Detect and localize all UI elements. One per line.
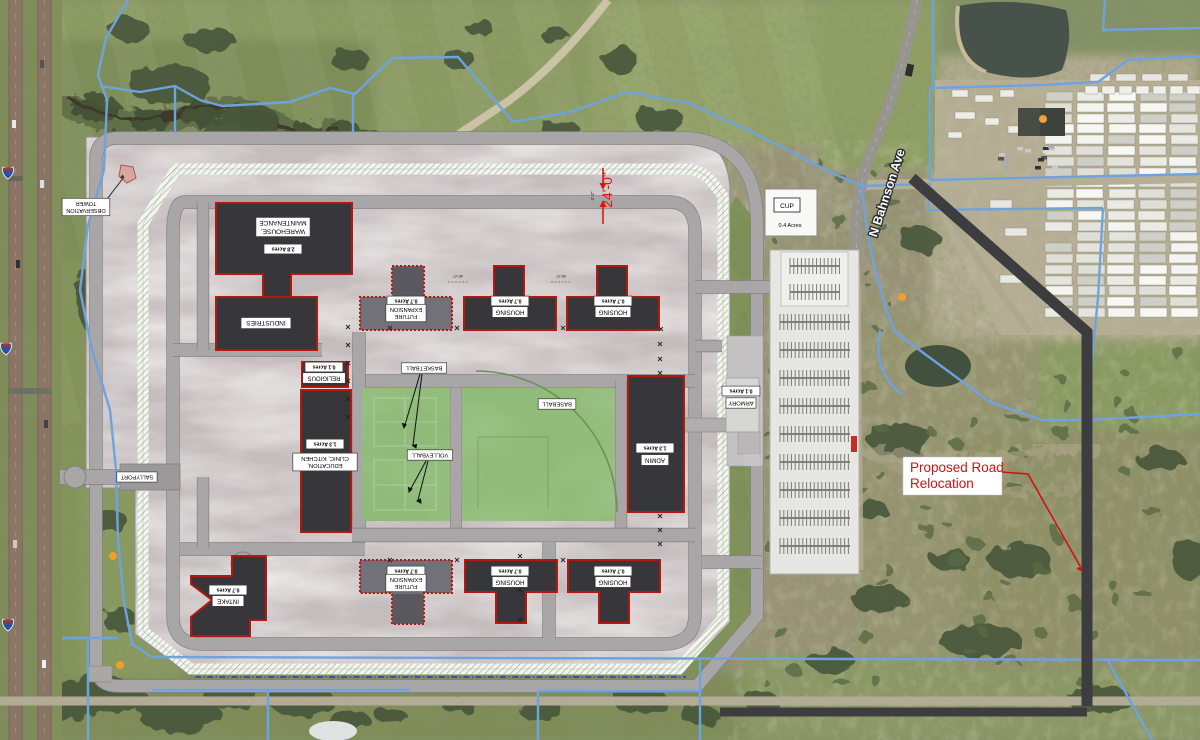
svg-text:RELIGIOUS: RELIGIOUS bbox=[308, 374, 341, 380]
svg-text:0.7 Acres: 0.7 Acres bbox=[394, 568, 417, 574]
svg-text:MAINTENANCE: MAINTENANCE bbox=[259, 219, 307, 226]
svg-text:40'-0": 40'-0" bbox=[452, 274, 463, 279]
svg-text:2.8 Acres: 2.8 Acres bbox=[271, 246, 294, 252]
svg-text:1.3 Acres: 1.3 Acres bbox=[643, 445, 666, 451]
svg-text:HOUSING: HOUSING bbox=[598, 578, 627, 585]
svg-text:OBSERVATION: OBSERVATION bbox=[66, 207, 105, 213]
svg-text:0.7 Acres: 0.7 Acres bbox=[394, 298, 417, 304]
svg-text:40'-0": 40'-0" bbox=[555, 274, 566, 279]
svg-text:3'-2": 3'-2" bbox=[590, 191, 595, 200]
svg-text:CLINIC, KITCHEN: CLINIC, KITCHEN bbox=[301, 455, 349, 461]
svg-text:ARMORY: ARMORY bbox=[728, 400, 753, 406]
svg-text:INDUSTRIES: INDUSTRIES bbox=[246, 319, 286, 326]
svg-text:EXPANSION: EXPANSION bbox=[390, 576, 422, 582]
svg-text:EDUCATION,: EDUCATION, bbox=[307, 462, 343, 468]
svg-text:0.1 Acres: 0.1 Acres bbox=[729, 388, 752, 394]
svg-text:0.4 Acres: 0.4 Acres bbox=[779, 223, 802, 229]
svg-text:VOLLEYBALL: VOLLEYBALL bbox=[411, 452, 449, 458]
svg-text:HOUSING: HOUSING bbox=[598, 308, 627, 315]
svg-text:Proposed Road: Proposed Road bbox=[910, 460, 1004, 475]
svg-text:1.3 Acres: 1.3 Acres bbox=[313, 441, 336, 447]
svg-text:0.7 Acres: 0.7 Acres bbox=[498, 298, 521, 304]
svg-text:0.7 Acres: 0.7 Acres bbox=[601, 568, 624, 574]
svg-text:HOUSING: HOUSING bbox=[495, 308, 524, 315]
svg-text:0.1 Acres: 0.1 Acres bbox=[312, 364, 335, 370]
svg-text:EXPANSION: EXPANSION bbox=[390, 306, 422, 312]
svg-text:FUTURE: FUTURE bbox=[394, 583, 417, 589]
svg-text:SALLYPORT: SALLYPORT bbox=[120, 474, 153, 480]
svg-text:BASKETBALL: BASKETBALL bbox=[405, 365, 443, 371]
svg-text:BASEBALL: BASEBALL bbox=[541, 401, 571, 407]
svg-text:24'-0": 24'-0" bbox=[599, 172, 615, 208]
svg-text:0.7 Acres: 0.7 Acres bbox=[216, 587, 239, 593]
svg-text:0.7 Acres: 0.7 Acres bbox=[601, 298, 624, 304]
svg-text:WAREHOUSE,: WAREHOUSE, bbox=[261, 227, 305, 234]
svg-text:Relocation: Relocation bbox=[910, 476, 974, 491]
svg-text:ADMIN: ADMIN bbox=[645, 456, 665, 463]
svg-text:FUTURE: FUTURE bbox=[394, 313, 417, 319]
svg-text:HOUSING: HOUSING bbox=[495, 578, 524, 585]
svg-text:TOWER: TOWER bbox=[76, 200, 97, 206]
svg-text:0.7 Acres: 0.7 Acres bbox=[498, 568, 521, 574]
svg-text:CUP: CUP bbox=[780, 203, 794, 210]
svg-text:INTAKE: INTAKE bbox=[217, 597, 239, 604]
